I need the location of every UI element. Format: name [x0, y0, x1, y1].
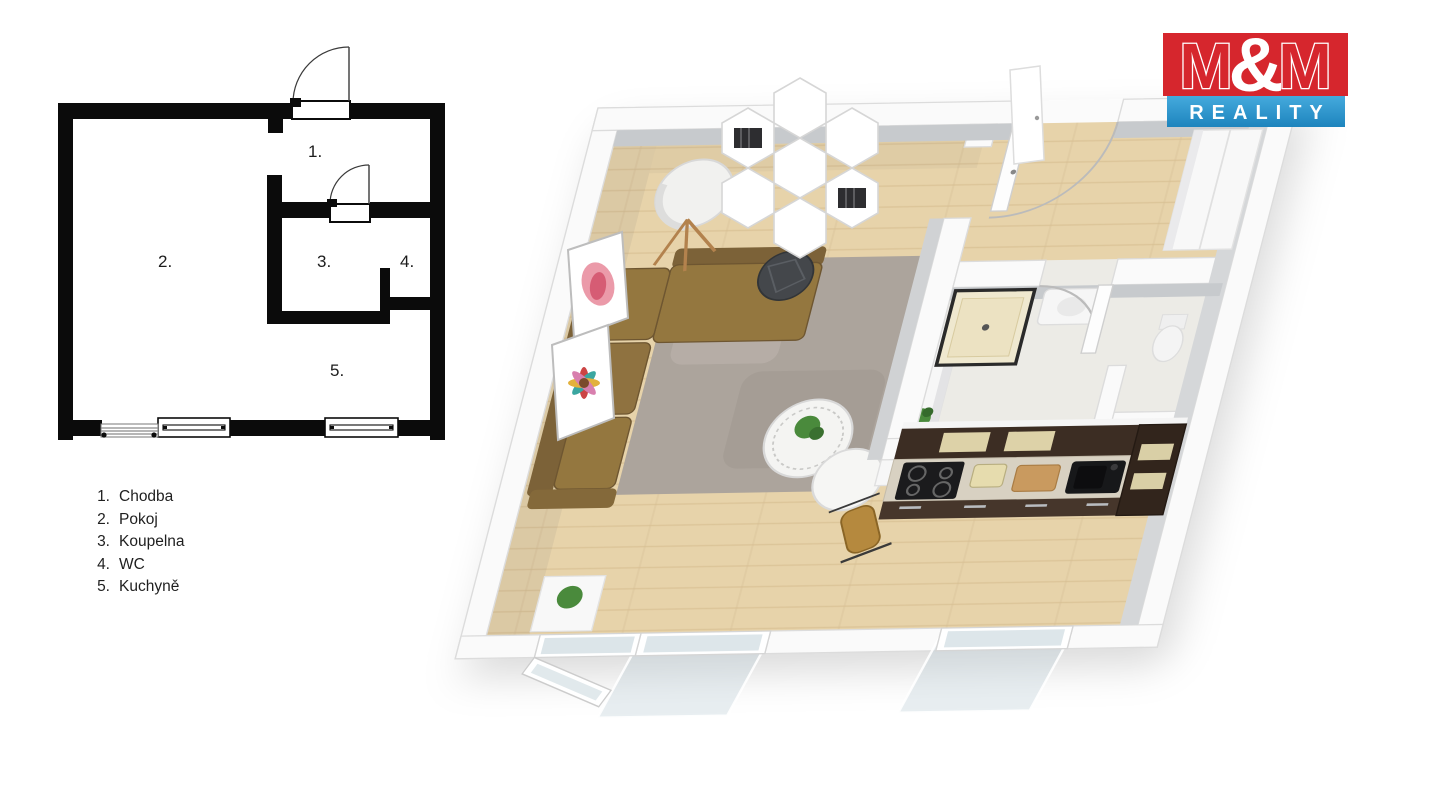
- wall-bath-top-left: [953, 260, 1046, 287]
- legend-item: 1. Chodba: [88, 486, 185, 509]
- legend-item: 5. Kuchyně: [88, 576, 185, 599]
- room-label-1: 1.: [308, 142, 322, 161]
- tall-cabinet-panel: [1138, 444, 1175, 461]
- floor-plan-2d: 1. 2. 3. 4. 5.: [58, 47, 445, 440]
- wall-interior-vertical: [267, 175, 282, 324]
- wall-bottom-a: [58, 420, 102, 436]
- room-label-2: 2.: [158, 252, 172, 271]
- logo-m2: M: [1278, 30, 1331, 102]
- balcony-door-leaf: [522, 657, 611, 706]
- room-label-5: 5.: [330, 361, 344, 380]
- window-tick: [330, 426, 334, 429]
- wall-stub-34: [380, 268, 390, 311]
- legend-item: 4. WC: [88, 554, 185, 577]
- legend-label: Chodba: [119, 486, 173, 509]
- door-handle: [1035, 116, 1039, 120]
- wall-bath-top-right: [370, 202, 432, 218]
- wall-south-c: [1067, 624, 1163, 648]
- wall-stub-entrance: [268, 119, 283, 133]
- logo-reality-text: REALITY: [1189, 102, 1331, 124]
- upper-cabinet-panel: [1004, 431, 1056, 451]
- screenshot-root: 1. 2. 3. 4. 5. M M & REALITY 1. Chodba 2…: [0, 0, 1440, 810]
- legend-num: 2.: [88, 509, 110, 532]
- legend-num: 5.: [88, 576, 110, 599]
- sink: [1064, 461, 1126, 494]
- window-symbol-1: [158, 418, 230, 437]
- entrance-door-standing: [1010, 66, 1044, 164]
- sofa-armrest: [526, 488, 617, 509]
- wall-south-b: [765, 628, 942, 654]
- legend-label: Koupelna: [119, 531, 185, 554]
- wall-bath-top-left: [282, 202, 330, 218]
- window-inner: [330, 425, 393, 430]
- balcony-door-symbol: [101, 424, 158, 438]
- legend-item: 3. Koupelna: [88, 531, 185, 554]
- legend-num: 1.: [88, 486, 110, 509]
- window-tick: [163, 426, 167, 429]
- painting-lotus: [568, 232, 628, 338]
- daisy-center: [579, 378, 589, 388]
- door-swing-arc: [293, 47, 349, 103]
- stove: [894, 462, 965, 500]
- wall-top-left: [58, 103, 292, 119]
- room-label-3: 3.: [317, 252, 331, 271]
- slider-dot: [101, 432, 106, 437]
- window-tick: [389, 426, 393, 429]
- window-tick: [221, 426, 225, 429]
- cutting-board: [1011, 465, 1061, 492]
- legend-label: WC: [119, 554, 145, 577]
- room-label-4: 4.: [400, 252, 414, 271]
- kitchen: [878, 418, 1188, 520]
- bathroom-door-symbol: [327, 165, 370, 222]
- logo-m1: M: [1179, 30, 1232, 102]
- wall-left: [58, 103, 73, 440]
- door-swing-arc: [330, 165, 369, 204]
- wall-bath-bottom: [267, 311, 390, 324]
- tall-cabinet-panel: [1130, 473, 1167, 490]
- entrance-door-symbol: [290, 47, 350, 119]
- mm-reality-logo: M M & REALITY: [1163, 23, 1348, 127]
- wall-bottom-c: [398, 420, 445, 436]
- door-latch: [290, 98, 301, 107]
- window-glass: [944, 629, 1065, 647]
- upper-cabinet-panel: [939, 432, 991, 452]
- toaster: [969, 464, 1007, 487]
- wall-bottom-b: [230, 420, 325, 436]
- legend: 1. Chodba 2. Pokoj 3. Koupelna 4. WC 5. …: [88, 486, 185, 599]
- legend-item: 2. Pokoj: [88, 509, 185, 532]
- legend-num: 3.: [88, 531, 110, 554]
- window-inner: [163, 425, 225, 430]
- door-latch: [327, 199, 337, 207]
- wall-right: [430, 103, 445, 440]
- window-symbol-2: [325, 418, 398, 437]
- legend-label: Kuchyně: [119, 576, 179, 599]
- legend-num: 4.: [88, 554, 110, 577]
- window-glass: [643, 634, 762, 652]
- sink-basin: [1073, 466, 1108, 489]
- balcony-door-glass: [541, 636, 635, 654]
- room-labels: 1. 2. 3. 4. 5.: [158, 142, 414, 380]
- logo-ampersand: &: [1229, 23, 1284, 108]
- wall-south-a: [455, 635, 540, 659]
- slider-dot: [151, 432, 156, 437]
- legend-label: Pokoj: [119, 509, 158, 532]
- floorplan-scene: 1. 2. 3. 4. 5. M M & REALITY: [0, 0, 1440, 810]
